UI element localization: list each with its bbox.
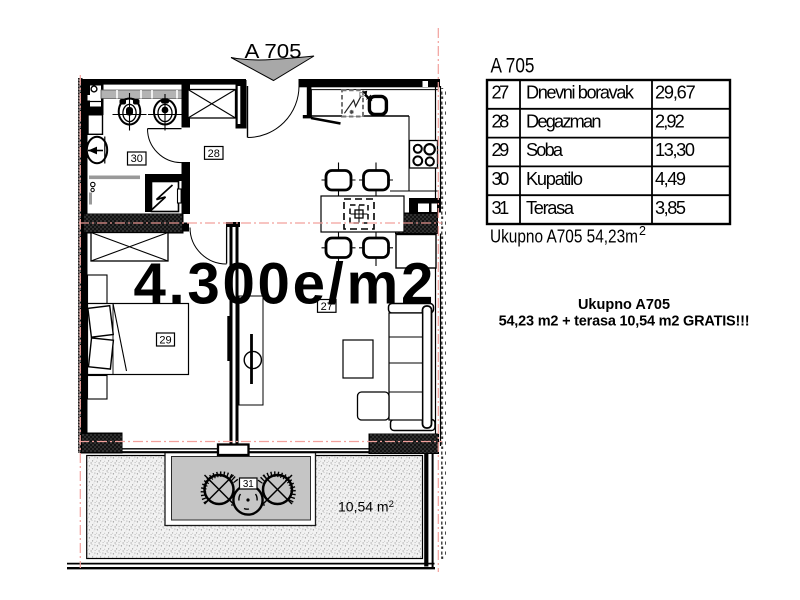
svg-text:54,23 m2 + terasa 10,54 m2 GRA: 54,23 m2 + terasa 10,54 m2 GRATIS!!! (499, 314, 750, 330)
svg-text:30: 30 (492, 169, 510, 189)
svg-text:10,54 m2: 10,54 m2 (338, 499, 394, 515)
svg-text:Dnevni boravak: Dnevni boravak (526, 83, 635, 103)
svg-text:Ukupno A705: Ukupno A705 (578, 297, 670, 313)
svg-text:3,85: 3,85 (655, 198, 686, 218)
svg-text:Soba: Soba (526, 140, 564, 160)
svg-text:A 705: A 705 (491, 55, 535, 78)
svg-text:Degazman: Degazman (526, 111, 602, 131)
svg-text:Kupatilo: Kupatilo (526, 169, 583, 189)
svg-text:30: 30 (131, 153, 143, 165)
svg-text:13,30: 13,30 (655, 140, 695, 160)
svg-text:29: 29 (492, 140, 510, 160)
svg-text:31: 31 (243, 479, 254, 490)
svg-text:31: 31 (492, 198, 510, 218)
svg-text:29,67: 29,67 (655, 83, 696, 103)
svg-text:28: 28 (492, 111, 510, 131)
svg-text:28: 28 (208, 148, 220, 160)
svg-text:4.300e/m2: 4.300e/m2 (134, 251, 437, 316)
svg-text:Terasa: Terasa (526, 198, 575, 218)
svg-text:2: 2 (639, 224, 646, 238)
svg-text:4,49: 4,49 (655, 169, 686, 189)
svg-text:2,92: 2,92 (655, 111, 685, 131)
svg-text:29: 29 (159, 334, 171, 346)
svg-text:27: 27 (492, 83, 510, 103)
svg-text:A 705: A 705 (245, 40, 302, 63)
svg-text:Ukupno A705 54,23m: Ukupno A705 54,23m (490, 227, 638, 247)
